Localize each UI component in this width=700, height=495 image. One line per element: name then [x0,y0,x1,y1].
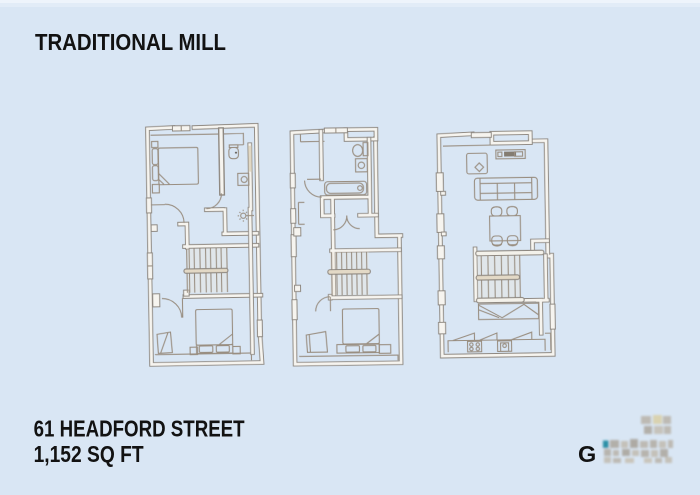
svg-text:G: G [578,441,596,467]
svg-text:1,152 SQ FT: 1,152 SQ FT [34,441,144,467]
svg-text:61 HEADFORD STREET: 61 HEADFORD STREET [34,415,245,441]
svg-text:TRADITIONAL MILL: TRADITIONAL MILL [35,29,226,55]
